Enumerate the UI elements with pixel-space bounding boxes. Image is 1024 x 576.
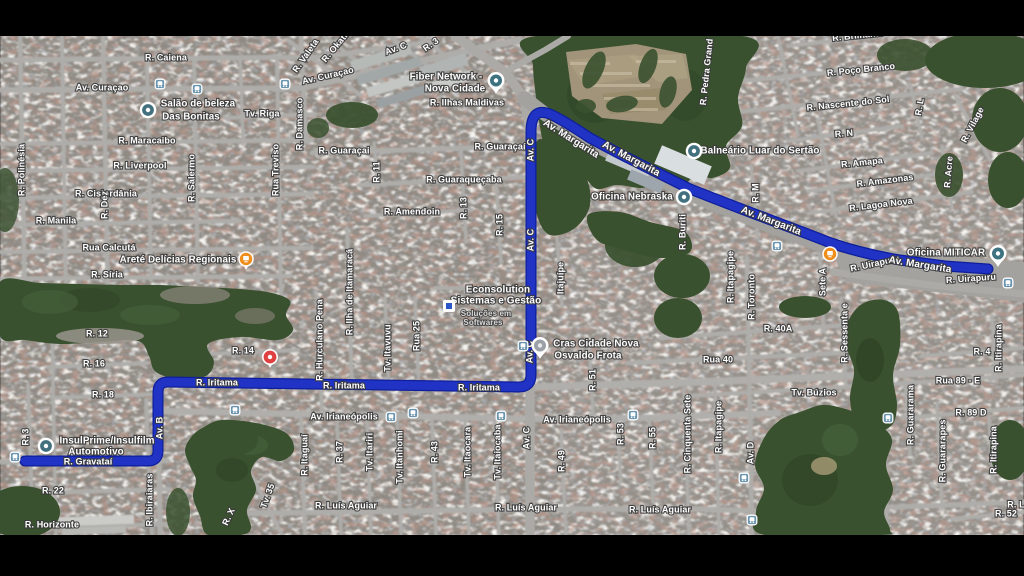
svg-text:Fiber Network -: Fiber Network - <box>410 72 483 83</box>
svg-text:Areté Delícias Regionais: Areté Delícias Regionais <box>120 255 237 266</box>
svg-text:R. Caiena: R. Caiena <box>145 52 188 62</box>
svg-text:Tv. Itariri: Tv. Itariri <box>364 433 374 471</box>
svg-text:R. 43: R. 43 <box>429 441 439 463</box>
svg-text:R. Itirapina: R. Itirapina <box>988 425 998 474</box>
svg-text:Tv. Búzios: Tv. Búzios <box>791 387 836 397</box>
svg-text:R. 13: R. 13 <box>458 197 468 219</box>
svg-text:R. Liverpool: R. Liverpool <box>113 160 166 170</box>
svg-text:R. Itaguaí: R. Itaguaí <box>299 434 309 476</box>
svg-text:Av. C: Av. C <box>525 138 535 161</box>
svg-text:R. Gravataí: R. Gravataí <box>64 456 113 466</box>
svg-text:Av. B: Av. B <box>154 416 164 439</box>
svg-text:Soluções em: Soluções em <box>461 309 511 318</box>
svg-text:Sete A: Sete A <box>817 267 827 296</box>
svg-text:R. Ilhas Maldivas: R. Ilhas Maldivas <box>430 97 504 107</box>
svg-text:R. 52: R. 52 <box>995 508 1017 518</box>
svg-text:R. Damasco: R. Damasco <box>294 97 304 150</box>
svg-text:R. Amendoin: R. Amendoin <box>384 206 440 216</box>
svg-text:R. Luís Aguiar: R. Luís Aguiar <box>495 502 557 512</box>
svg-text:R. Guaraçai: R. Guaraçai <box>318 145 369 155</box>
svg-text:Av. D: Av. D <box>745 441 755 464</box>
svg-text:R. Toronto: R. Toronto <box>746 274 756 320</box>
svg-text:R. Buriti: R. Buriti <box>677 214 687 250</box>
svg-text:R. 18: R. 18 <box>92 389 114 399</box>
svg-text:R. Horizonte: R. Horizonte <box>25 519 79 529</box>
svg-text:Balneário Luar do Sertão: Balneário Luar do Sertão <box>701 146 820 157</box>
svg-text:Tv. Riga: Tv. Riga <box>244 108 280 118</box>
svg-text:R. Guararapes: R. Guararapes <box>937 420 947 483</box>
svg-text:R. Itapagipe: R. Itapagipe <box>725 251 735 303</box>
svg-text:Automotivo: Automotivo <box>68 447 123 458</box>
svg-text:Econsolution: Econsolution <box>466 285 531 296</box>
svg-text:Osvaldo Frota: Osvaldo Frota <box>554 351 622 362</box>
svg-text:R. Maracaibo: R. Maracaibo <box>118 135 176 145</box>
svg-text:Tv. Itanhomi: Tv. Itanhomi <box>394 430 404 484</box>
svg-text:Tv. Itaocara: Tv. Itaocara <box>462 426 472 477</box>
svg-text:R. 16: R. 16 <box>83 358 105 368</box>
svg-text:R. Manila: R. Manila <box>36 215 77 225</box>
svg-text:Itajuípe: Itajuípe <box>555 262 565 294</box>
svg-text:R. Itirapina: R. Itirapina <box>993 323 1003 372</box>
svg-text:Rua Calcutá: Rua Calcutá <box>82 242 136 252</box>
svg-text:R. 12: R. 12 <box>86 328 108 338</box>
svg-text:R. Guaraçaí: R. Guaraçaí <box>474 141 526 151</box>
svg-text:R. Luís Aguiar: R. Luís Aguiar <box>629 504 691 514</box>
svg-text:R. Cinquenta Sete: R. Cinquenta Sete <box>682 395 692 474</box>
svg-text:R. Ilha de Itamaracá: R. Ilha de Itamaracá <box>344 248 354 335</box>
svg-text:R. Iritama: R. Iritama <box>196 377 239 387</box>
svg-text:R. 37: R. 37 <box>334 441 344 463</box>
svg-text:Oficina Nebraska: Oficina Nebraska <box>591 192 673 203</box>
svg-text:R. 11: R. 11 <box>371 161 381 183</box>
svg-text:Av. Irianeópolis: Av. Irianeópolis <box>543 414 611 424</box>
svg-text:R. Dez: R. Dez <box>99 191 109 220</box>
svg-text:Softwares: Softwares <box>463 318 503 327</box>
svg-text:Sistemas e Gestão: Sistemas e Gestão <box>451 296 542 307</box>
svg-text:Rua 40: Rua 40 <box>703 354 733 364</box>
svg-text:Tv. Itavuvu: Tv. Itavuvu <box>382 324 392 371</box>
svg-text:R. Síria: R. Síria <box>91 269 124 279</box>
svg-text:R. 15: R. 15 <box>494 214 504 236</box>
svg-text:Rua Treviso: Rua Treviso <box>270 144 280 197</box>
svg-text:R. Iritama: R. Iritama <box>458 382 501 392</box>
svg-text:R. Polinésia: R. Polinésia <box>16 143 26 196</box>
svg-text:R. Iritama: R. Iritama <box>323 380 366 390</box>
svg-text:R. Salermo: R. Salermo <box>186 154 196 202</box>
svg-text:R. Guararama: R. Guararama <box>905 384 915 445</box>
svg-text:Tv. Itaiocaba: Tv. Itaiocaba <box>492 424 502 480</box>
svg-text:R. 40A: R. 40A <box>764 323 793 333</box>
svg-text:Av. Irianeópolis: Av. Irianeópolis <box>310 411 378 421</box>
svg-text:R. 4: R. 4 <box>974 346 991 356</box>
svg-text:R. 14: R. 14 <box>232 345 254 355</box>
svg-text:Oficina MITICAR: Oficina MITICAR <box>907 248 985 259</box>
svg-text:R. Ibiraiaras: R. Ibiraiaras <box>144 474 154 527</box>
svg-text:R. M: R. M <box>750 183 760 202</box>
svg-text:R. 49: R. 49 <box>556 450 566 472</box>
svg-text:R. N: R. N <box>834 128 853 140</box>
svg-text:Rua 25: Rua 25 <box>411 321 421 351</box>
svg-text:Das Bonitas: Das Bonitas <box>162 112 220 123</box>
svg-text:R. 51: R. 51 <box>587 369 597 391</box>
svg-text:Av. Curaçao: Av. Curaçao <box>76 82 129 92</box>
svg-text:R. 53: R. 53 <box>615 423 625 445</box>
svg-text:R. 22: R. 22 <box>42 485 64 495</box>
svg-text:R. Luís Aguiar: R. Luís Aguiar <box>315 500 377 510</box>
svg-text:R. 3: R. 3 <box>20 429 30 446</box>
svg-text:Av. C: Av. C <box>521 426 531 449</box>
svg-text:R. Sessenta e: R. Sessenta e <box>839 303 849 363</box>
svg-text:R. Itapagipe: R. Itapagipe <box>713 401 723 453</box>
svg-text:Salão de beleza: Salão de beleza <box>161 99 236 110</box>
svg-text:Cras Cidade Nova: Cras Cidade Nova <box>553 339 639 350</box>
svg-text:R. 89 D: R. 89 D <box>955 407 987 417</box>
svg-text:Nova Cidade: Nova Cidade <box>425 84 486 95</box>
svg-text:Av. C: Av. C <box>525 228 535 251</box>
svg-text:InsulPrime/Insulfilm: InsulPrime/Insulfilm <box>59 436 154 447</box>
svg-text:R. Guaraqueçaba: R. Guaraqueçaba <box>426 174 502 184</box>
svg-text:Rua 89 - E: Rua 89 - E <box>936 375 981 385</box>
svg-text:R. 55: R. 55 <box>647 427 657 449</box>
svg-text:R. Hurculano Pena: R. Hurculano Pena <box>314 298 324 381</box>
